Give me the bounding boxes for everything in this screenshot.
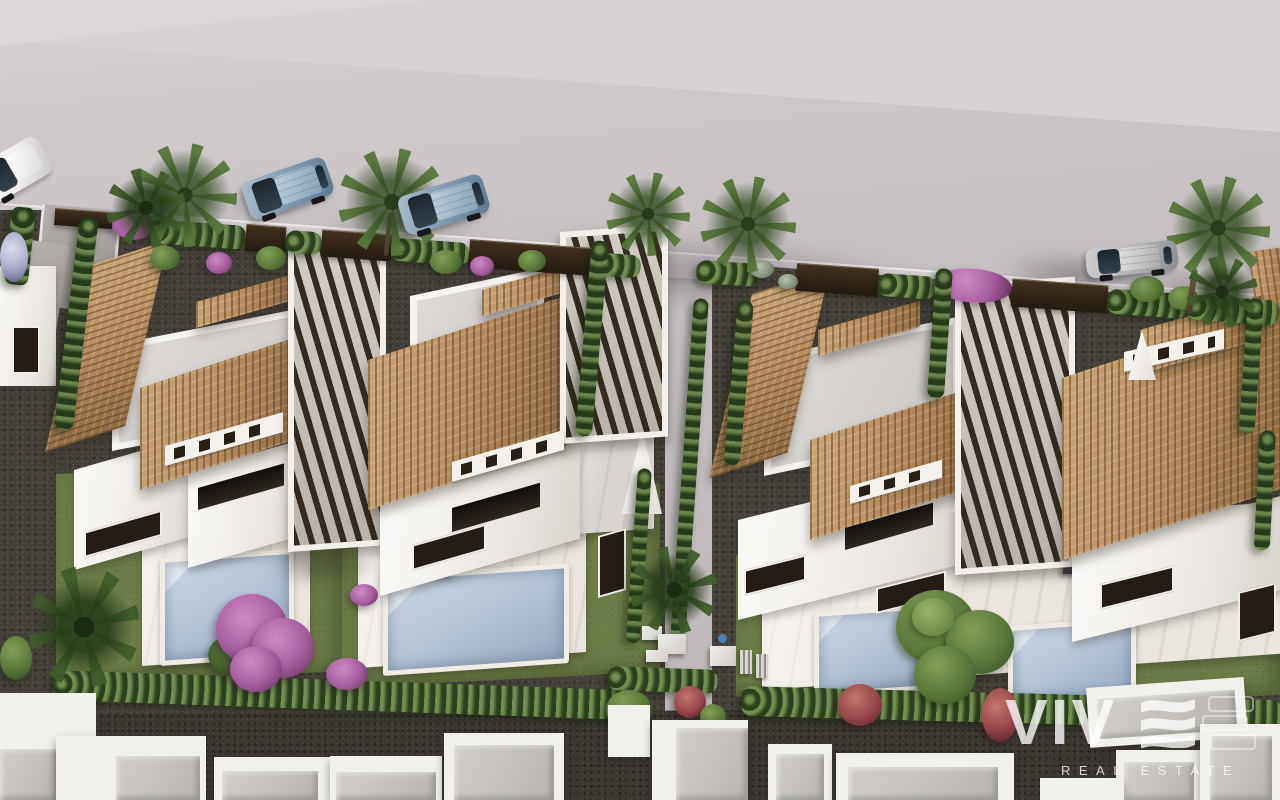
palm-tree	[106, 168, 186, 248]
ground-grate	[756, 654, 768, 678]
front-fence	[795, 263, 879, 297]
lower-building	[214, 757, 332, 800]
garden-bush	[0, 636, 32, 680]
palm-tree	[606, 172, 690, 256]
lower-building	[608, 705, 650, 757]
lower-building	[652, 720, 748, 800]
neighbor-house-window	[12, 326, 40, 374]
garden-bush	[430, 250, 462, 274]
flower-accent	[350, 584, 378, 606]
garden-flower-bush	[470, 256, 494, 276]
render-image: VIV REAL ESTATE	[0, 0, 1280, 800]
vive-logo: VIV REAL ESTATE	[1005, 690, 1265, 790]
garden-bush	[256, 246, 286, 270]
red-plant	[838, 684, 882, 726]
logo-tagline: REAL ESTATE	[1061, 763, 1240, 778]
stone-ball-bush	[778, 274, 798, 289]
logo-blocks-icon	[1201, 696, 1257, 756]
lower-building	[330, 756, 442, 800]
logo-wave-e-icon	[1139, 694, 1197, 748]
front-hedge	[877, 273, 937, 300]
bougainvillea-tree	[230, 646, 282, 692]
lower-building	[768, 744, 832, 800]
lower-building	[444, 733, 564, 800]
bougainvillea-bush	[326, 658, 368, 690]
car-rear-window	[1163, 246, 1173, 265]
palm-tree	[1186, 256, 1258, 328]
front-hedge	[285, 230, 323, 256]
water-valve	[718, 634, 727, 643]
garden-flower-bush	[206, 252, 232, 274]
garden-bush	[150, 246, 180, 270]
utility-box	[710, 646, 736, 666]
garden-tree-highlight	[912, 598, 954, 636]
car-roof	[1119, 244, 1161, 272]
lower-building	[56, 736, 206, 800]
villa-c-pergola	[955, 277, 1075, 575]
garden-tree	[914, 646, 976, 704]
logo-brand-text: VIV	[1005, 690, 1117, 754]
utility-box	[646, 650, 668, 662]
villa-d-side-window	[1238, 583, 1276, 642]
ground-grate	[740, 650, 752, 674]
villa-b-side-window	[598, 528, 626, 598]
banana-plant	[28, 566, 140, 688]
palm-tree	[700, 176, 796, 272]
flower-bed	[0, 232, 28, 282]
walkway-palm	[630, 546, 718, 634]
car-windshield	[1097, 248, 1121, 274]
lower-building	[836, 753, 1014, 800]
pergola-shadow-on-lawn	[268, 544, 378, 586]
garden-bush	[518, 250, 546, 272]
